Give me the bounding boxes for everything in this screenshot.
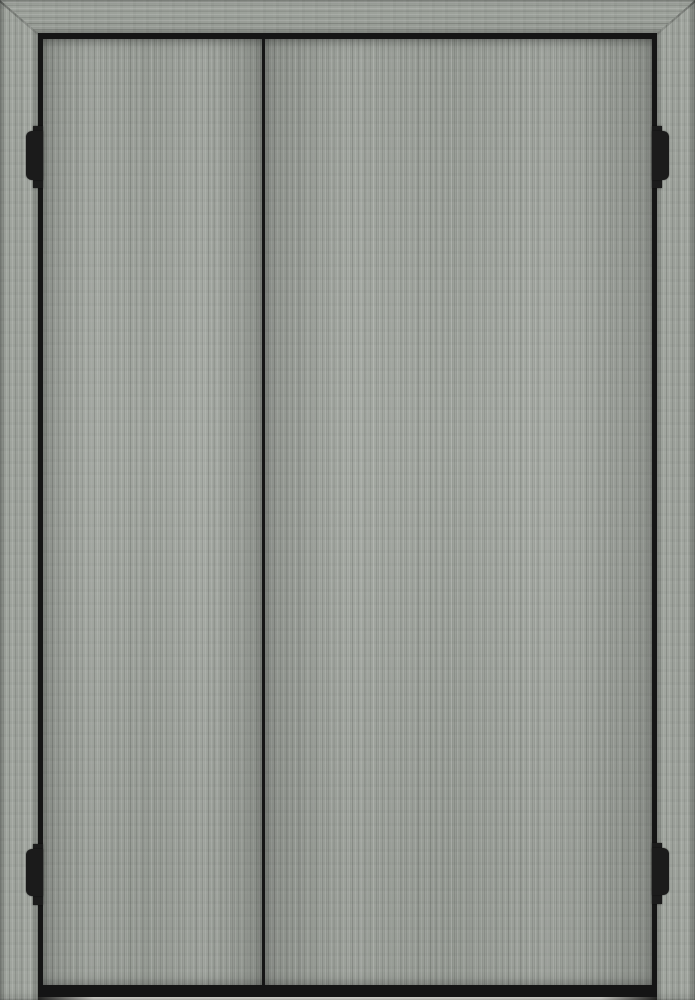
cabinet-photo (0, 0, 695, 1000)
hinge-pad (652, 848, 669, 895)
hinge-bottom-left-icon (26, 844, 43, 905)
hinge-bottom-right-icon (652, 843, 669, 905)
hinge-top-right-icon (652, 126, 669, 188)
frame-top-rail (0, 0, 695, 33)
hinge-pad (652, 131, 669, 180)
hinge-pad (26, 849, 43, 896)
left-door (43, 39, 262, 985)
right-door (265, 39, 652, 985)
hinge-pad (26, 131, 43, 180)
hinge-top-left-icon (26, 126, 43, 188)
